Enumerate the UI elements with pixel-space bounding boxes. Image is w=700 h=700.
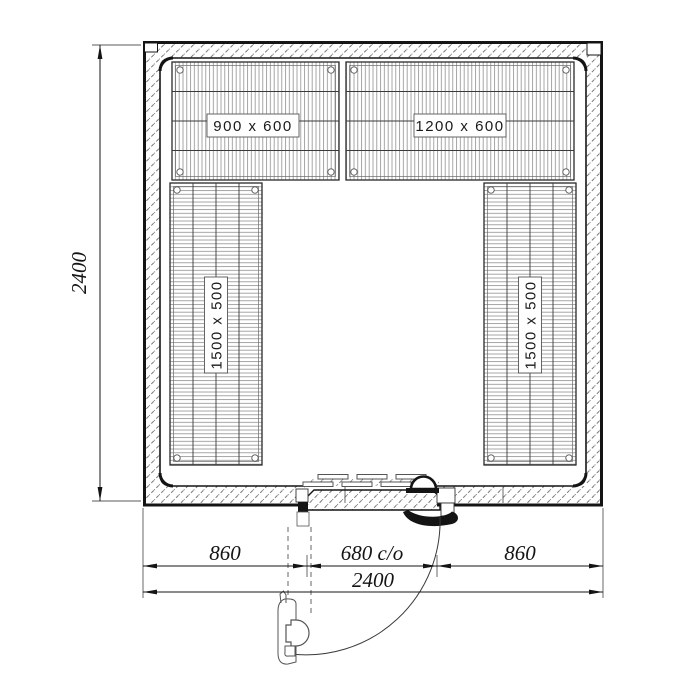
corner-fillet-bottom-right (573, 473, 586, 486)
door-threshold-step (297, 512, 309, 526)
shelf-label: 1200 x 600 (415, 118, 504, 135)
shelf-top-left: 900 x 600 (172, 62, 339, 180)
dim-text-overall-width: 2400 (352, 568, 395, 592)
shelf-label: 1500 x 500 (209, 280, 226, 369)
corner-fillet-bottom-left (160, 473, 173, 486)
floor-plan-drawing: 900 x 600 1200 x 600 1500 x 500 (0, 0, 700, 700)
door-jamb-right (437, 488, 455, 503)
dim-text-right-of-door: 860 (504, 541, 536, 565)
shelf-left: 1500 x 500 (170, 183, 262, 465)
dim-text-overall-height: 2400 (67, 252, 91, 295)
door-hinge (298, 502, 308, 512)
panel-joint-top-left (145, 43, 158, 52)
shelf-label: 900 x 600 (213, 118, 292, 135)
shelf-top-right: 1200 x 600 (346, 62, 574, 180)
door-jamb-left (296, 489, 308, 502)
corner-fillet-top-left (160, 58, 173, 71)
shelf-label: 1500 x 500 (523, 280, 540, 369)
dimension-overall-height: 2400 (67, 45, 141, 501)
shelf-right: 1500 x 500 (484, 183, 576, 465)
dimension-overall-width: 2400 (143, 568, 603, 594)
floor-plan-page: 900 x 600 1200 x 600 1500 x 500 (0, 0, 700, 700)
dim-text-left-of-door: 860 (209, 541, 241, 565)
panel-joint-top-right (587, 43, 601, 55)
door-latch-dome (411, 477, 436, 490)
corner-fillet-top-right (573, 58, 586, 71)
dim-text-door-opening: 680 c/o (341, 541, 403, 565)
door-open-ghost (278, 591, 309, 664)
